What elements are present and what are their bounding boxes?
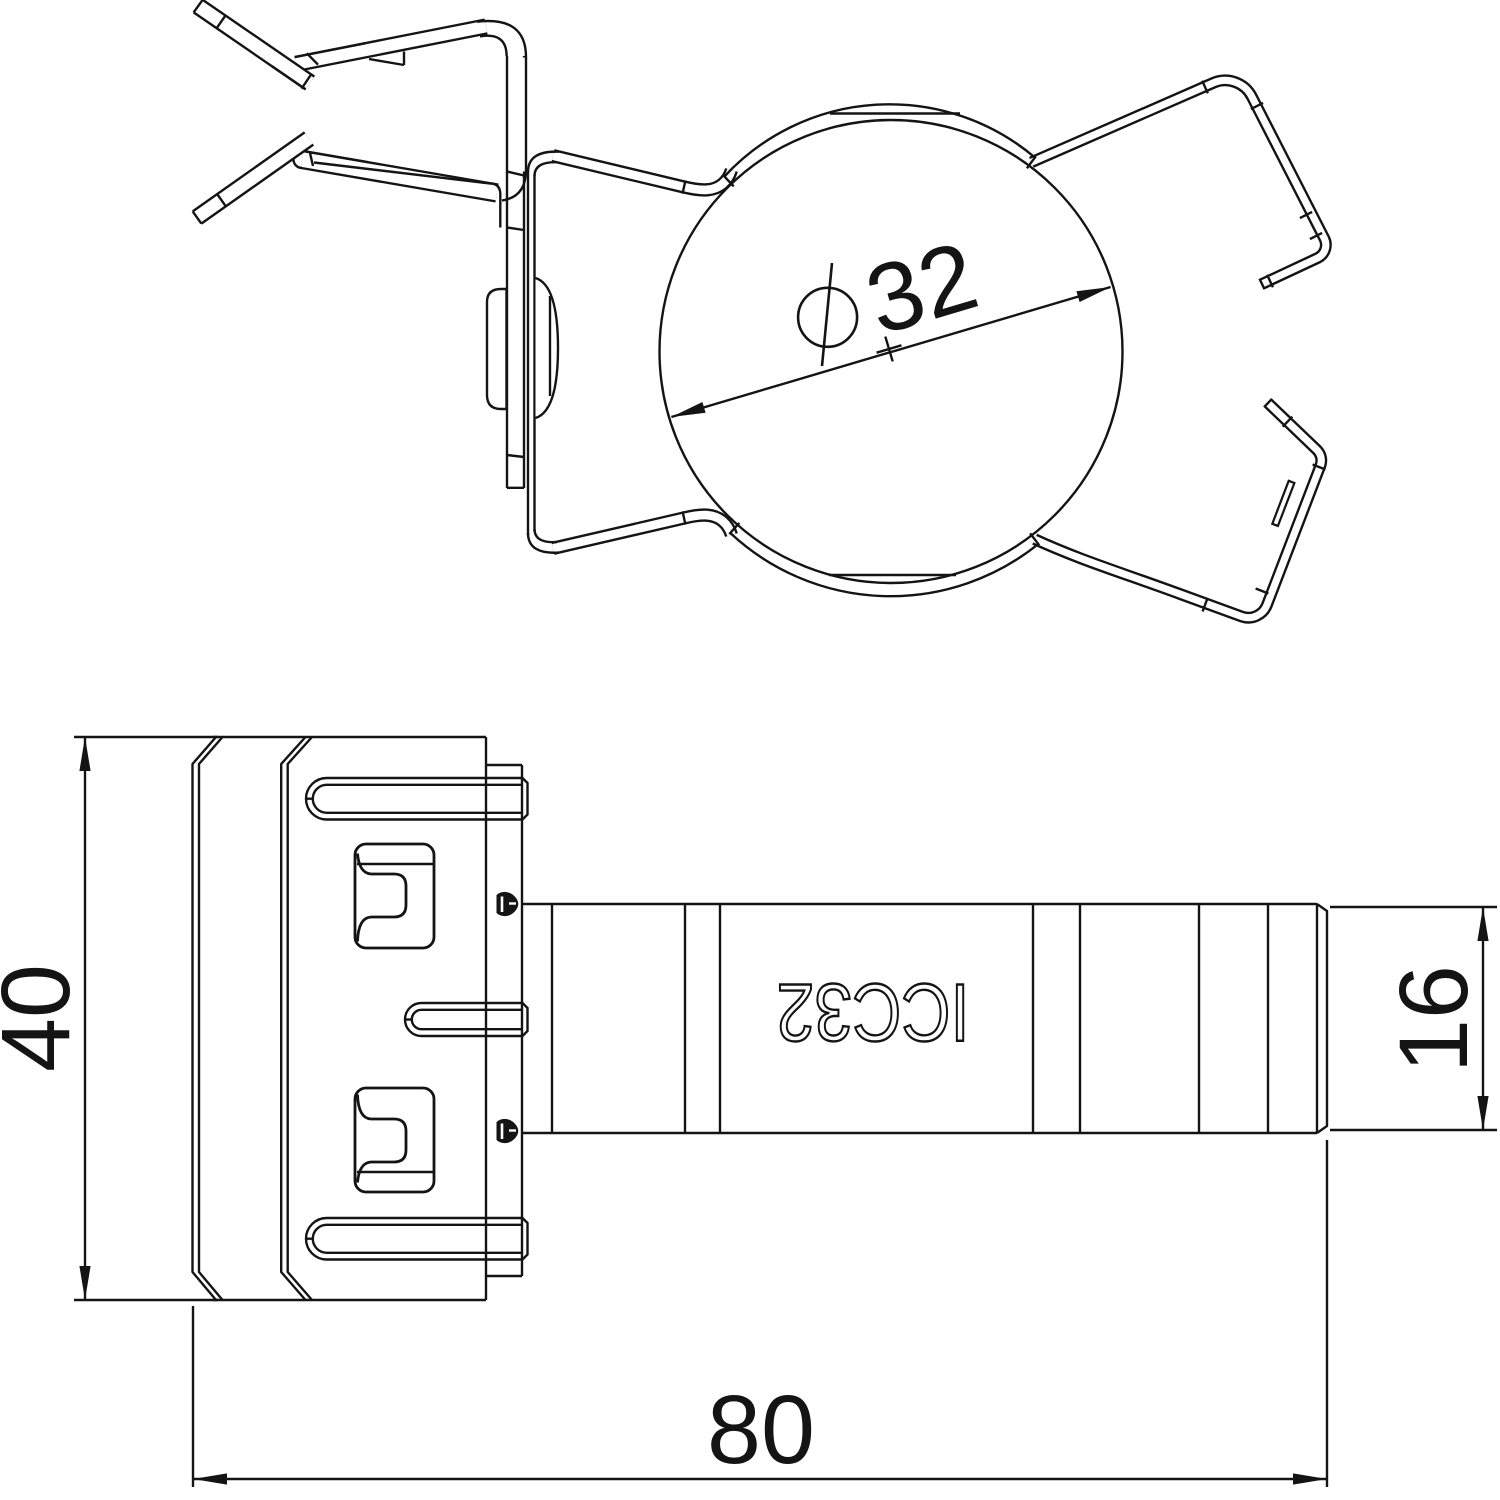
svg-text:80: 80 <box>707 1375 815 1484</box>
svg-text:40: 40 <box>0 964 90 1072</box>
svg-text:16: 16 <box>1379 965 1488 1073</box>
svg-text:ICC32: ICC32 <box>777 967 970 1058</box>
